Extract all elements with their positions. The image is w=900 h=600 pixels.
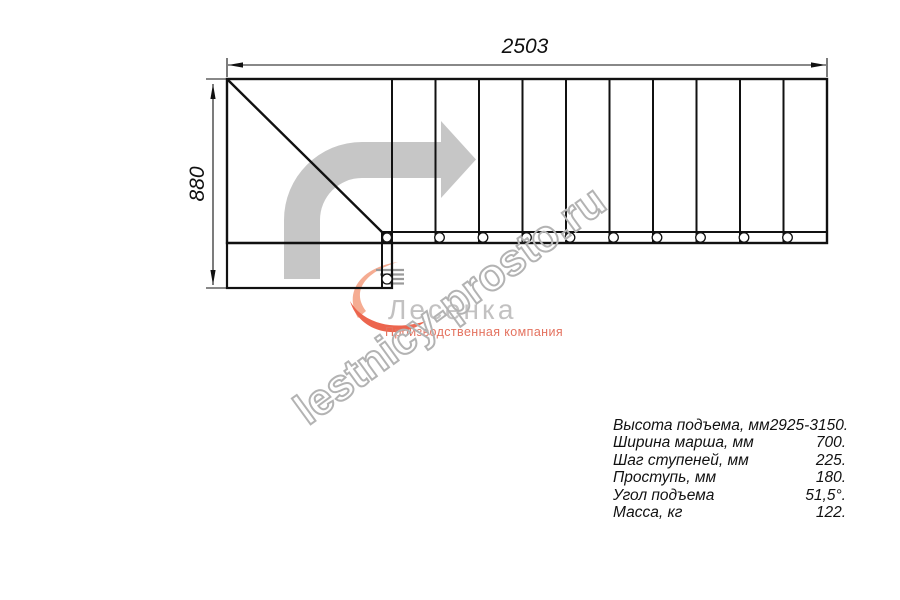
spec-label: Ширина марша, мм bbox=[613, 434, 754, 451]
spec-value: 180. bbox=[816, 469, 846, 486]
spec-label: Шаг ступеней, мм bbox=[613, 452, 749, 469]
spec-label: Угол подъема bbox=[613, 487, 714, 504]
direction-arrow bbox=[284, 121, 476, 279]
spec-label: Масса, кг bbox=[613, 504, 682, 521]
dimension-width-label: 2503 bbox=[495, 35, 555, 59]
spec-table: Высота подъема, мм 2925-3150. Ширина мар… bbox=[613, 417, 846, 521]
spec-row-step-pitch: Шаг ступеней, мм 225. bbox=[613, 452, 846, 469]
spec-value: 51,5°. bbox=[805, 487, 846, 504]
spec-row-mass: Масса, кг 122. bbox=[613, 504, 846, 521]
spec-row-tread-depth: Проступь, мм 180. bbox=[613, 469, 846, 486]
stair-drawing-page: 2503 880 Лесенка Производственная компан… bbox=[0, 0, 900, 600]
spec-label: Проступь, мм bbox=[613, 469, 716, 486]
spec-row-flight-width: Ширина марша, мм 700. bbox=[613, 434, 846, 451]
spec-value: 2925-3150. bbox=[770, 417, 848, 434]
spec-label: Высота подъема, мм bbox=[613, 417, 770, 434]
dimension-height-label: 880 bbox=[186, 159, 210, 209]
spec-row-height: Высота подъема, мм 2925-3150. bbox=[613, 417, 846, 434]
spec-value: 700. bbox=[816, 434, 846, 451]
spec-row-climb-angle: Угол подъема 51,5°. bbox=[613, 487, 846, 504]
spec-value: 225. bbox=[816, 452, 846, 469]
dimension-width bbox=[227, 58, 827, 77]
spec-value: 122. bbox=[816, 504, 846, 521]
